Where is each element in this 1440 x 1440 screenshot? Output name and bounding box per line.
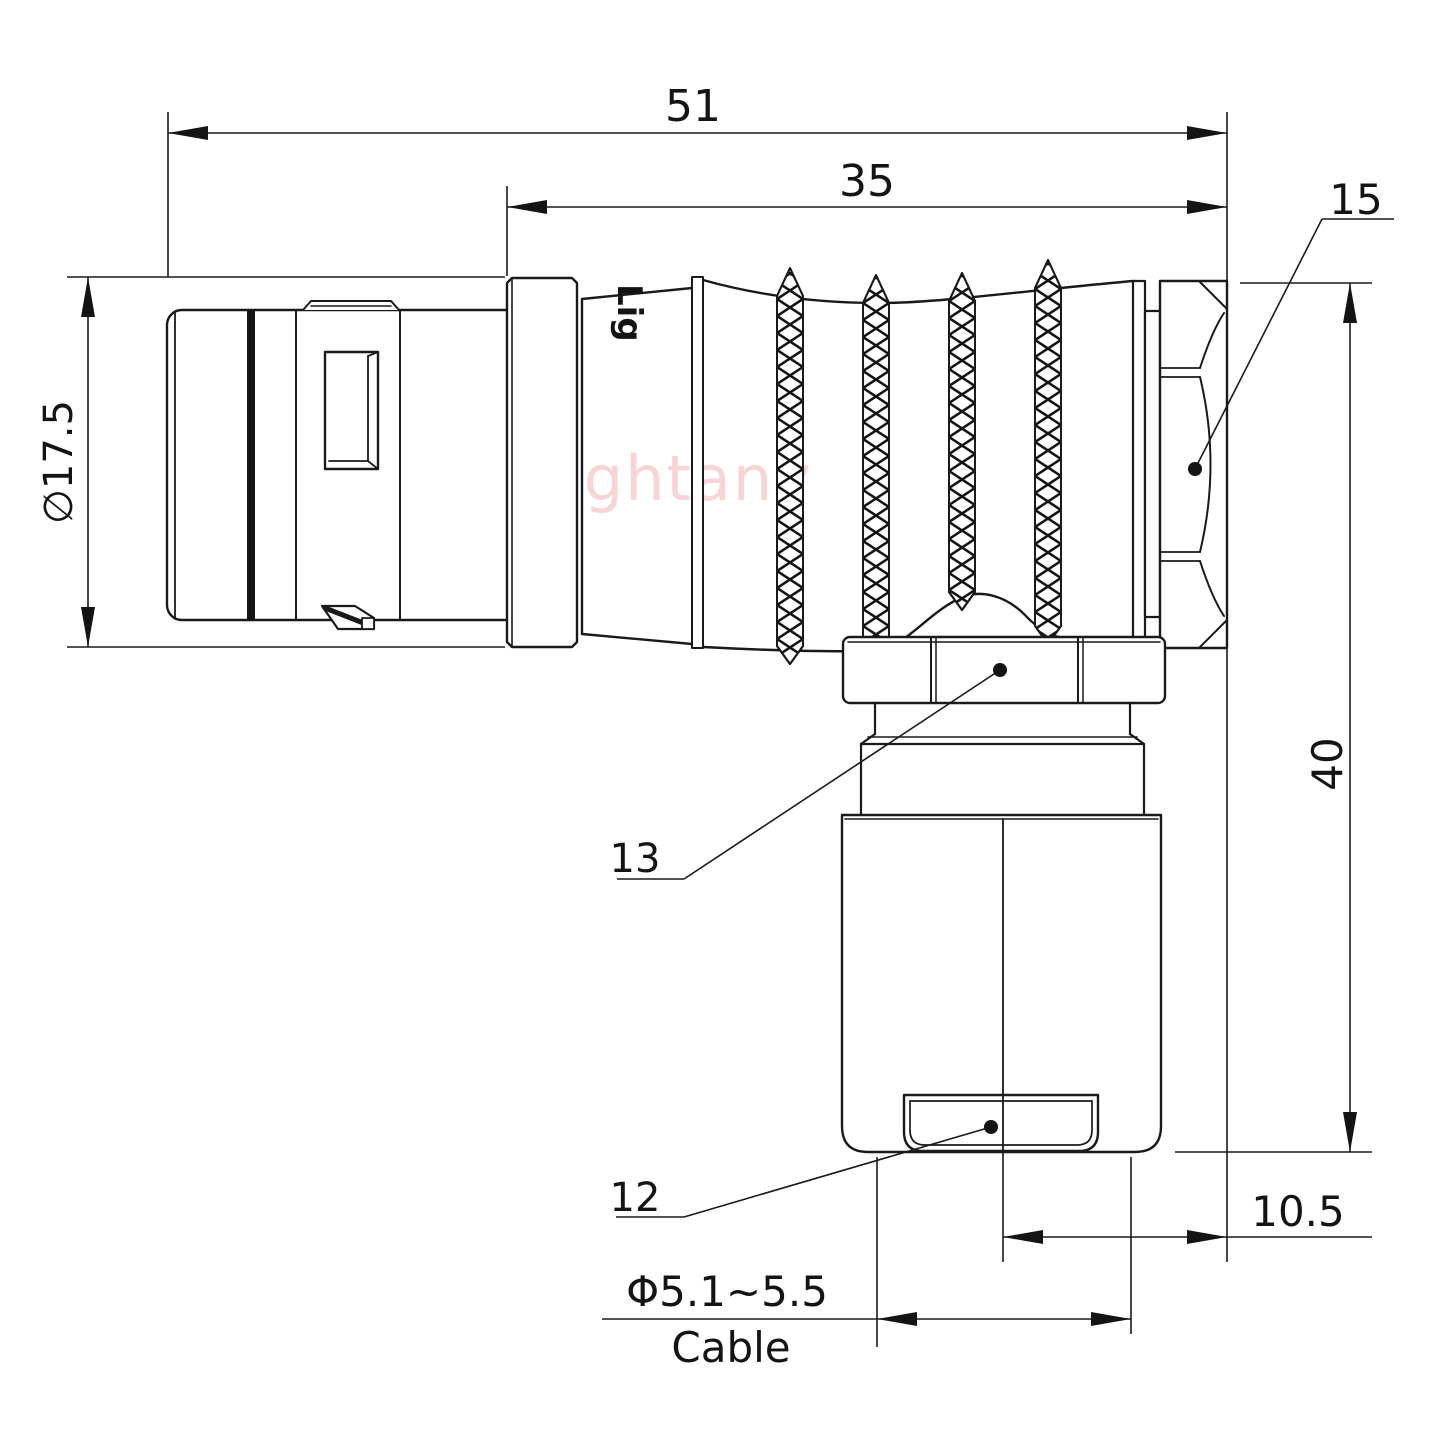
arrowhead <box>1091 1312 1131 1326</box>
plug-sleeve <box>167 301 507 629</box>
body-marking: Lig <box>609 284 649 342</box>
knurl-ribs <box>777 260 1061 668</box>
arrowhead <box>81 607 95 647</box>
elbow-group <box>842 637 1165 1152</box>
technical-drawing-page: Lightany <box>0 0 1440 1440</box>
knurl-rib <box>949 273 975 610</box>
arrowhead <box>168 126 208 140</box>
collar-ring <box>507 278 577 647</box>
leader-dot <box>984 1120 998 1134</box>
grip-ridge <box>692 277 703 648</box>
label-ref-gland-nut: 13 <box>610 836 661 882</box>
neck-band <box>1145 311 1160 617</box>
arrowhead <box>1003 1230 1043 1244</box>
arrowhead <box>1187 200 1227 214</box>
arrowhead <box>81 277 95 317</box>
grip-top-edge <box>703 280 1133 303</box>
arrowhead <box>1343 283 1357 323</box>
label-overall-length: 51 <box>665 81 721 132</box>
leader-dot <box>1188 462 1202 476</box>
label-cable-word: Cable <box>671 1323 790 1372</box>
grip-end-cap <box>1133 281 1145 644</box>
label-nut-width: 15 <box>1329 175 1382 224</box>
cable-bushing <box>904 1095 1098 1151</box>
connector-drawing: Lightany <box>0 0 1440 1440</box>
dim-cable-diameter <box>602 1157 1131 1347</box>
sleeve-groove <box>247 310 255 620</box>
knurl-rib <box>777 268 803 664</box>
label-ref-bushing: 12 <box>610 1175 661 1221</box>
gland-neck <box>861 703 1144 815</box>
knurl-rib <box>1035 260 1061 644</box>
arrowhead <box>1343 1112 1357 1152</box>
arrowhead <box>507 200 547 214</box>
knurl-rib <box>863 275 889 668</box>
label-axis-offset: 10.5 <box>1251 1187 1345 1236</box>
label-plug-diameter: ∅17.5 <box>36 400 82 524</box>
label-barrel-length: 35 <box>839 156 895 207</box>
label-cable-diameter: Φ5.1~5.5 <box>626 1267 828 1316</box>
arrowhead <box>1187 1230 1227 1244</box>
label-overall-height: 40 <box>1303 737 1352 790</box>
arrowhead <box>1187 126 1227 140</box>
leader-dot <box>993 663 1007 677</box>
dimension-labels: 51 35 15 ∅17.5 40 10.5 Φ5.1~5.5 Cable 13… <box>36 81 1383 1372</box>
arrowhead <box>877 1312 917 1326</box>
guide-key <box>303 301 399 310</box>
latch-window <box>325 352 378 469</box>
connector-body-group <box>167 260 1227 668</box>
